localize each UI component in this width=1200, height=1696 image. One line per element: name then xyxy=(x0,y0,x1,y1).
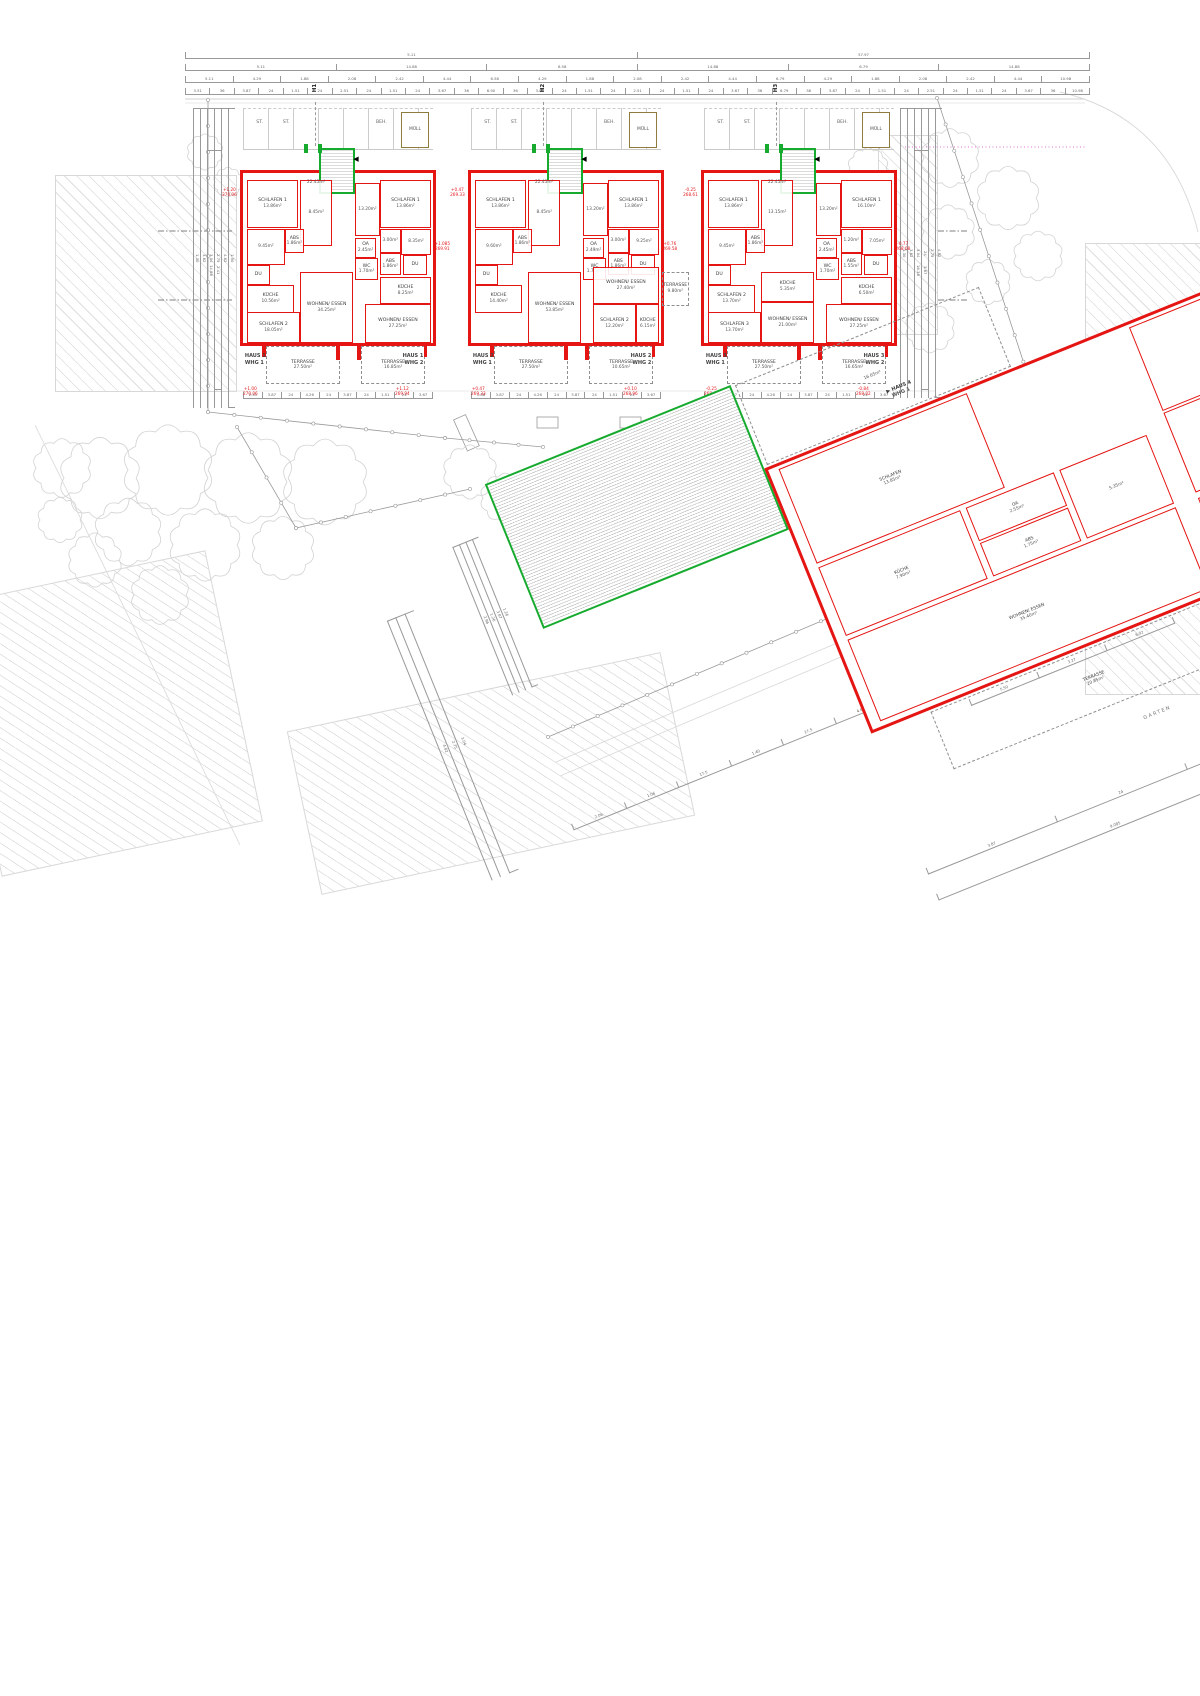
floorplan-canvas: { "drawing":{"parcel_label":"Flst.Nr.702… xyxy=(0,0,1200,848)
labels-layer: A▼A▼B▲B▲H1H2H3H4Flst.Nr.7024GehwegGehweg… xyxy=(0,0,1200,848)
